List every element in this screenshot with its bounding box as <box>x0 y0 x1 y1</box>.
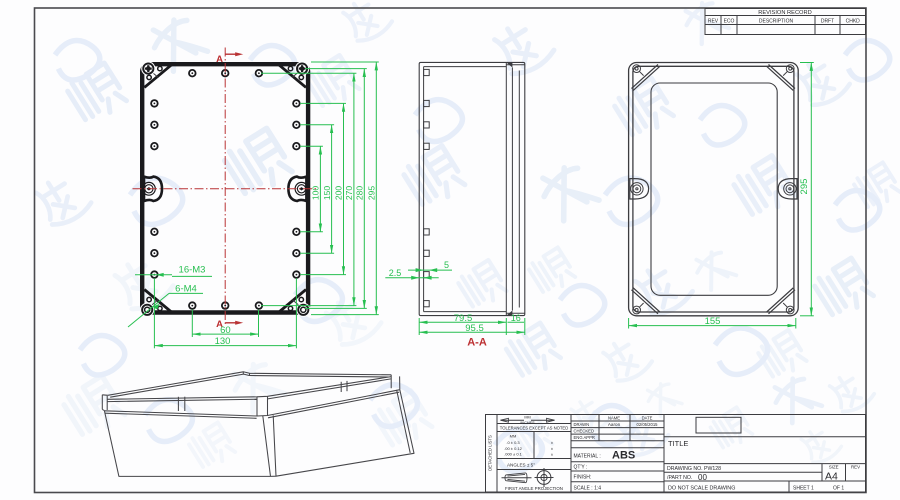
svg-text:100: 100 <box>311 186 321 201</box>
svg-text:FINISH:: FINISH: <box>574 474 592 480</box>
svg-text:MM: MM <box>510 434 517 439</box>
svg-text:TITLE: TITLE <box>668 439 688 448</box>
svg-text:MATERIAL :: MATERIAL : <box>574 454 601 460</box>
svg-text:155: 155 <box>705 316 721 327</box>
svg-text:60: 60 <box>220 325 231 336</box>
svg-text:DRAWING NO. PW128: DRAWING NO. PW128 <box>667 466 721 472</box>
svg-text:.000 ± 0.1: .000 ± 0.1 <box>504 451 523 456</box>
svg-text:2.5: 2.5 <box>389 268 402 278</box>
svg-text:DRFT: DRFT <box>821 18 834 24</box>
svg-text:NAME: NAME <box>608 415 620 420</box>
svg-text:FIRST ANGLE PROJECTION: FIRST ANGLE PROJECTION <box>505 486 563 491</box>
svg-text:295: 295 <box>799 179 810 195</box>
svg-text:280: 280 <box>355 186 365 201</box>
svg-text:02/05/2015: 02/05/2015 <box>637 422 659 427</box>
svg-text:CHKD: CHKD <box>846 18 861 24</box>
svg-text:DO NOT SCALE DRAWING: DO NOT SCALE DRAWING <box>668 486 735 492</box>
svg-text:±: ± <box>551 446 554 451</box>
svg-text:SIZE: SIZE <box>829 465 839 470</box>
svg-text:/PART NO.: /PART NO. <box>667 475 692 481</box>
svg-text:SCALE : 1:4: SCALE : 1:4 <box>574 485 602 491</box>
svg-text:DATE: DATE <box>642 415 653 420</box>
svg-text:.00 ± 0.12: .00 ± 0.12 <box>504 446 523 451</box>
svg-text:200: 200 <box>334 186 344 201</box>
svg-text:95.5: 95.5 <box>465 323 484 334</box>
svg-text:ANGLES ± 5°: ANGLES ± 5° <box>507 463 535 468</box>
svg-text:150: 150 <box>322 186 332 201</box>
svg-text:±: ± <box>551 451 554 456</box>
svg-text:DESCRIPTION: DESCRIPTION <box>759 18 794 24</box>
svg-text:A4: A4 <box>825 471 838 483</box>
svg-text:00: 00 <box>698 473 707 482</box>
svg-text:DETACHED LISTS: DETACHED LISTS <box>488 435 493 471</box>
svg-text:REV: REV <box>851 465 860 470</box>
svg-text:REVISION RECORD: REVISION RECORD <box>758 10 811 16</box>
svg-text:REV: REV <box>708 18 719 24</box>
svg-text:16: 16 <box>511 313 521 323</box>
svg-text:ENG APPR: ENG APPR <box>574 435 595 440</box>
svg-text:MM: MM <box>524 416 530 420</box>
svg-text:ABS: ABS <box>612 450 635 462</box>
svg-text:CHECKED: CHECKED <box>574 428 594 433</box>
svg-text:ECO: ECO <box>724 18 735 24</box>
svg-text:16-M3: 16-M3 <box>179 265 206 276</box>
svg-text:A: A <box>216 54 223 65</box>
svg-text:SHEET 1: SHEET 1 <box>793 486 814 492</box>
svg-text:OF 1: OF 1 <box>833 486 844 492</box>
svg-text:5: 5 <box>444 260 449 270</box>
svg-text:.0 ± 0.3: .0 ± 0.3 <box>506 440 520 445</box>
svg-text:A-A: A-A <box>467 336 487 348</box>
svg-text:130: 130 <box>215 336 231 347</box>
svg-text:DRAWN: DRAWN <box>574 422 590 427</box>
svg-text:270: 270 <box>344 186 354 201</box>
svg-text:Aaron: Aaron <box>608 422 621 427</box>
svg-text:295: 295 <box>367 186 377 201</box>
svg-text:QT'Y :: QT'Y : <box>574 464 588 470</box>
svg-text:TOLERANCES EXCEPT AS NOTED: TOLERANCES EXCEPT AS NOTED <box>500 426 569 431</box>
